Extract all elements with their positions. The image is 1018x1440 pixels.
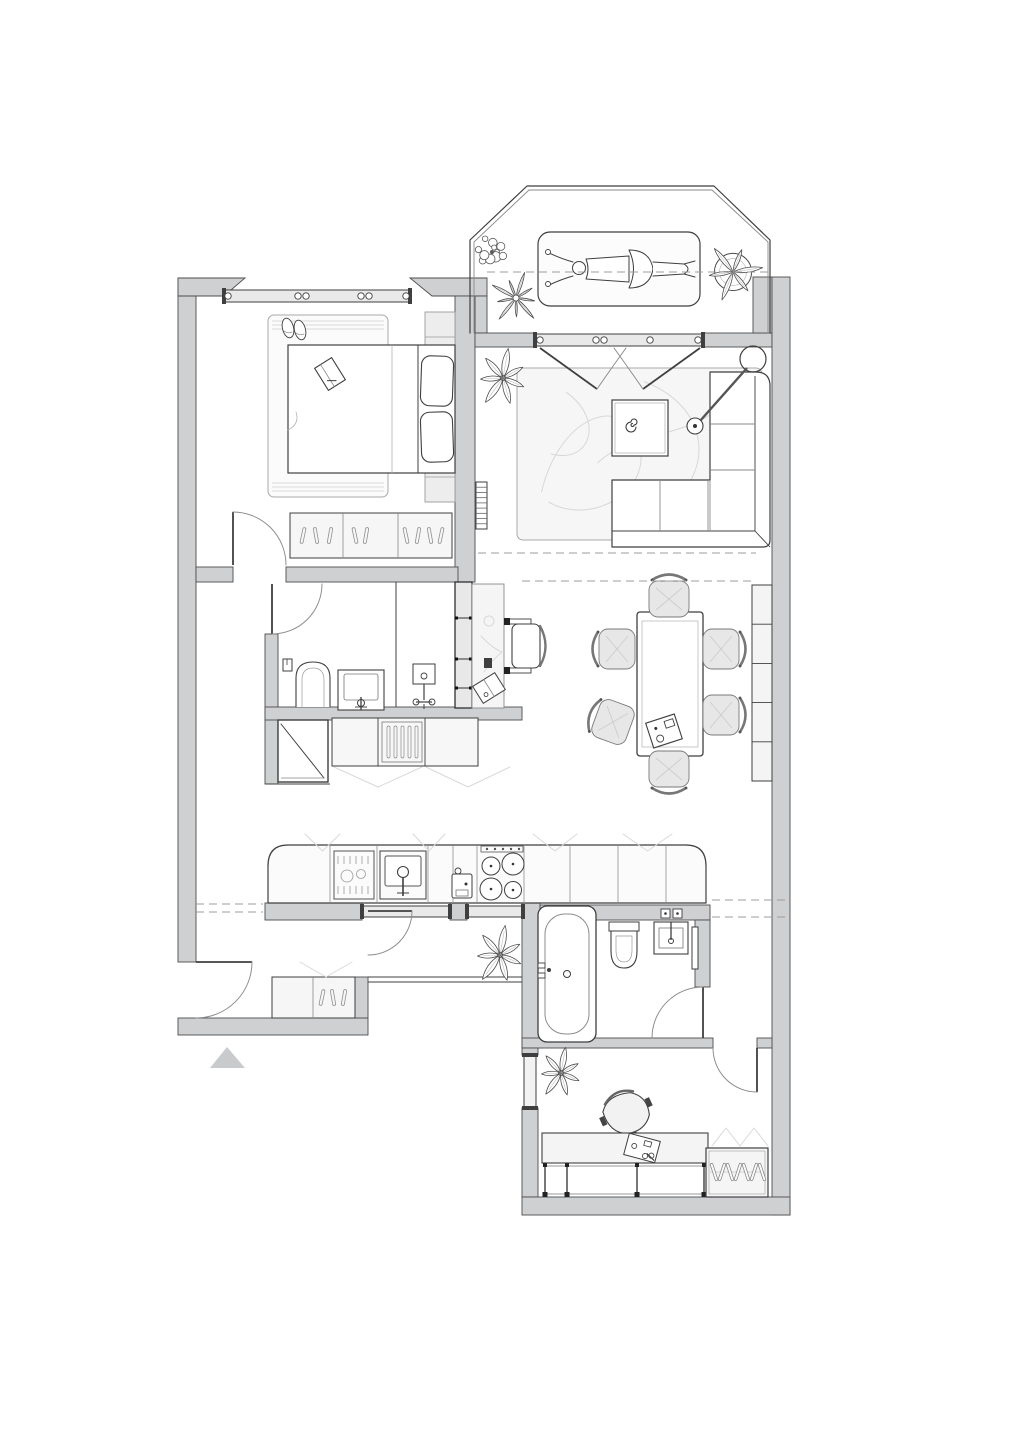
- dining-chair-west-1: [593, 629, 636, 669]
- office-south-wall: [522, 1197, 790, 1215]
- bathroom2-door: [652, 987, 703, 1038]
- bathtub: [538, 906, 596, 1042]
- nook-storage-wall: [455, 582, 472, 708]
- washbasin: [338, 670, 384, 710]
- outer-left-wall: [178, 278, 196, 962]
- nook-desk: [472, 584, 505, 708]
- office-window: [522, 1053, 538, 1110]
- office-wardrobe: [706, 1128, 768, 1197]
- bedroom-south-wall-right: [286, 567, 458, 582]
- towel-rail: [692, 927, 698, 969]
- toilet-2: [609, 922, 639, 968]
- bathroom-door: [272, 584, 322, 634]
- bedroom-sideboard: [290, 513, 452, 558]
- balcony-wall-left: [475, 333, 535, 347]
- plant-office: [542, 1047, 579, 1095]
- hall-parapet-post: [355, 977, 368, 1018]
- closet-mirror: [278, 720, 328, 782]
- entry-door: [196, 962, 252, 1018]
- bedroom-north-wall-right: [410, 278, 487, 296]
- bedroom-living-divider-wall: [455, 296, 475, 582]
- dining-chair-east-1: [703, 629, 746, 669]
- nook-chair: [504, 618, 546, 674]
- living-radiator: [476, 482, 487, 529]
- floor-plan-page: [0, 0, 1018, 1440]
- dining-chair-south: [649, 751, 689, 794]
- toilet: [283, 659, 330, 707]
- bedroom-south-wall-left: [196, 567, 233, 582]
- hall-south-wall: [178, 1018, 368, 1035]
- balcony-west-jamb: [475, 296, 487, 333]
- entrance-marker: [210, 1047, 245, 1068]
- coffee-table: [612, 400, 668, 456]
- double-bed: [288, 345, 455, 473]
- balcony-door-glazing: [533, 332, 705, 348]
- bedroom-door: [233, 512, 286, 565]
- kitchen-counter: [268, 834, 706, 903]
- office-desk: [542, 1133, 708, 1197]
- closet-cabinets: [332, 718, 510, 787]
- dining-chair-west-2: [583, 695, 637, 747]
- outer-right-wall: [772, 277, 790, 1215]
- office-door: [713, 1048, 757, 1092]
- closet-west-wall: [265, 712, 278, 784]
- bedroom-window: [222, 288, 412, 304]
- kitchen-glass-door: [368, 911, 412, 955]
- kitchen-back-wall-b: [450, 903, 467, 920]
- dining-table: [637, 612, 703, 756]
- balcony-east-wall: [753, 277, 772, 333]
- kitchen-back-wall-a: [265, 903, 362, 920]
- floor-plan-canvas: [0, 0, 1018, 1440]
- plant-kitchen: [478, 925, 521, 980]
- dining-shelf: [752, 585, 772, 781]
- balcony-wall-right: [703, 333, 772, 347]
- bathroom2-west-wall: [522, 903, 540, 1048]
- dining-chair-east-2: [703, 695, 746, 735]
- kitchen-window-b: [465, 904, 525, 919]
- plant-balcony-flowers: [475, 236, 506, 264]
- office-north-wall-stub: [757, 1038, 772, 1048]
- shower-mixer: [413, 664, 435, 709]
- shoe-cabinet: [272, 962, 355, 1018]
- plant-balcony-star: [492, 272, 534, 319]
- sun-lounger: [538, 232, 700, 306]
- bathroom-west-wall: [265, 634, 278, 712]
- office-west-wall-b: [522, 1108, 538, 1197]
